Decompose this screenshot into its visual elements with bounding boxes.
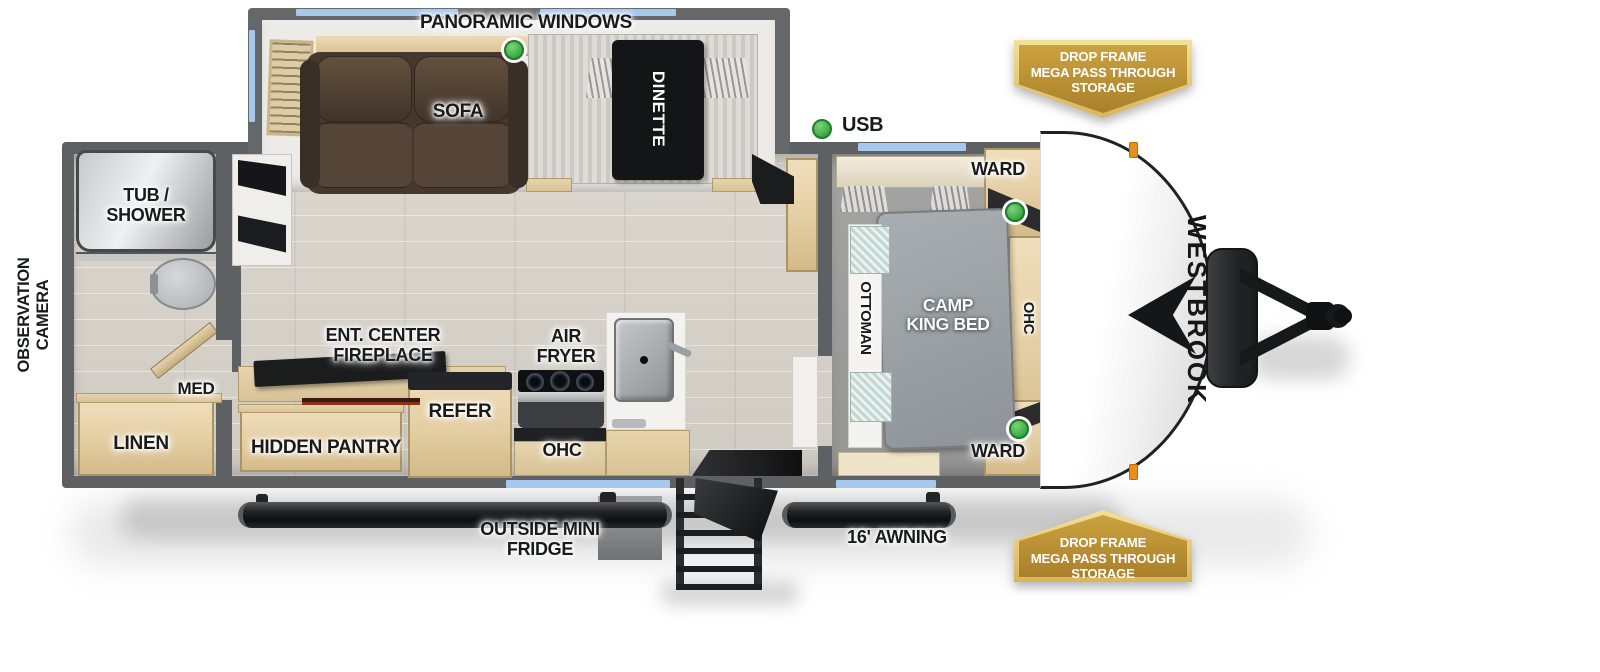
blind-fan [930, 186, 970, 210]
bathroom-wall [216, 400, 232, 476]
air-fryer-label: AIR FRYER [532, 327, 600, 367]
toilet-hinge [150, 274, 158, 294]
wall-stub [232, 266, 241, 372]
refrigerator-top [408, 372, 512, 390]
faucet [612, 419, 646, 428]
awning-tube [238, 502, 672, 528]
refer-label: REFER [425, 402, 495, 423]
dinette-bench-base [526, 178, 572, 192]
window-strip [506, 480, 670, 488]
camp-king-bed-label: CAMP KING BED [902, 296, 994, 335]
hidden-pantry-top [238, 404, 404, 413]
awning-tube [782, 502, 956, 528]
sofa-seat-cushion [414, 122, 510, 188]
window-strip [858, 143, 966, 151]
burner [526, 373, 544, 391]
ward-bottom-label: WARD [958, 442, 1038, 462]
ohc-kitchen-label: OHC [534, 441, 590, 461]
step-rung [676, 584, 762, 590]
sofa-back-cushion [316, 56, 412, 122]
outside-mini-fridge-label: OUTSIDE MINI FRIDGE [478, 520, 602, 560]
stove-handle [518, 392, 604, 402]
badge-line: MEGA PASS THROUGH [1014, 551, 1192, 567]
ward-marker-dot [1009, 419, 1029, 439]
ottoman-cushion [850, 372, 892, 422]
dinette-bench-base [712, 178, 758, 192]
ohc-bedroom-label: OHC [1020, 288, 1036, 348]
sink-drain [640, 356, 648, 364]
usb-marker-dot [812, 119, 832, 139]
window-strip [249, 30, 255, 122]
counter [606, 430, 690, 476]
panoramic-windows-label: PANORAMIC WINDOWS [420, 13, 605, 34]
hidden-pantry-label: HIDDEN PANTRY [251, 438, 391, 459]
usb-label: USB [842, 114, 902, 136]
linen-label: LINEN [86, 434, 196, 455]
sofa-label: SOFA [418, 102, 498, 123]
badge-line: MEGA PASS THROUGH [1014, 65, 1192, 81]
bedroom-wall [818, 154, 832, 356]
panoramic-windows-marker-dot [504, 40, 524, 60]
toilet [150, 258, 216, 310]
floorplan-canvas: SOFA DINETTE PANORAMIC WINDOWS TUB / SHO… [0, 0, 1600, 672]
badge-text: DROP FRAME MEGA PASS THROUGH STORAGE [1014, 49, 1192, 96]
observation-camera-label: OBSERVATION CAMERA [15, 230, 53, 400]
drop-frame-storage-badge: DROP FRAME MEGA PASS THROUGH STORAGE [1014, 510, 1192, 582]
window-strip [836, 480, 936, 488]
drop-frame-storage-badge: DROP FRAME MEGA PASS THROUGH STORAGE [1014, 40, 1192, 118]
bedroom-door [792, 356, 818, 448]
sofa-arm [300, 60, 320, 188]
badge-line: DROP FRAME [1014, 535, 1192, 551]
sofa-seat-cushion [316, 122, 412, 188]
bedroom-wall [818, 446, 832, 476]
burner [550, 371, 570, 391]
stove-body [518, 402, 604, 428]
marker-light [1129, 142, 1138, 158]
tub-shower-label: TUB / SHOWER [98, 186, 194, 226]
badge-text: DROP FRAME MEGA PASS THROUGH STORAGE [1014, 535, 1192, 582]
badge-line: DROP FRAME [1014, 49, 1192, 65]
step-rung [676, 548, 762, 554]
ent-center-fireplace-label: ENT. CENTER FIREPLACE [318, 326, 448, 366]
ottoman-label: OTTOMAN [857, 263, 873, 373]
marker-light [1129, 464, 1138, 480]
awning-label: 16' AWNING [842, 528, 952, 548]
dinette-label: DINETTE [648, 59, 668, 159]
entry-mat [692, 450, 802, 476]
badge-line: STORAGE [1014, 566, 1192, 582]
step-rung [676, 566, 762, 572]
ward-marker-dot [1005, 202, 1025, 222]
blind-fan [840, 186, 888, 212]
hitch-a-frame [1236, 252, 1356, 382]
med-label: MED [170, 380, 222, 399]
blind-fan [698, 58, 750, 98]
burner [576, 373, 594, 391]
ward-top-label: WARD [958, 160, 1038, 180]
bathroom-wall [216, 154, 232, 340]
badge-line: STORAGE [1014, 80, 1192, 96]
bedroom-bench [838, 452, 940, 476]
sofa-arm [508, 60, 528, 188]
fireplace [302, 398, 420, 405]
